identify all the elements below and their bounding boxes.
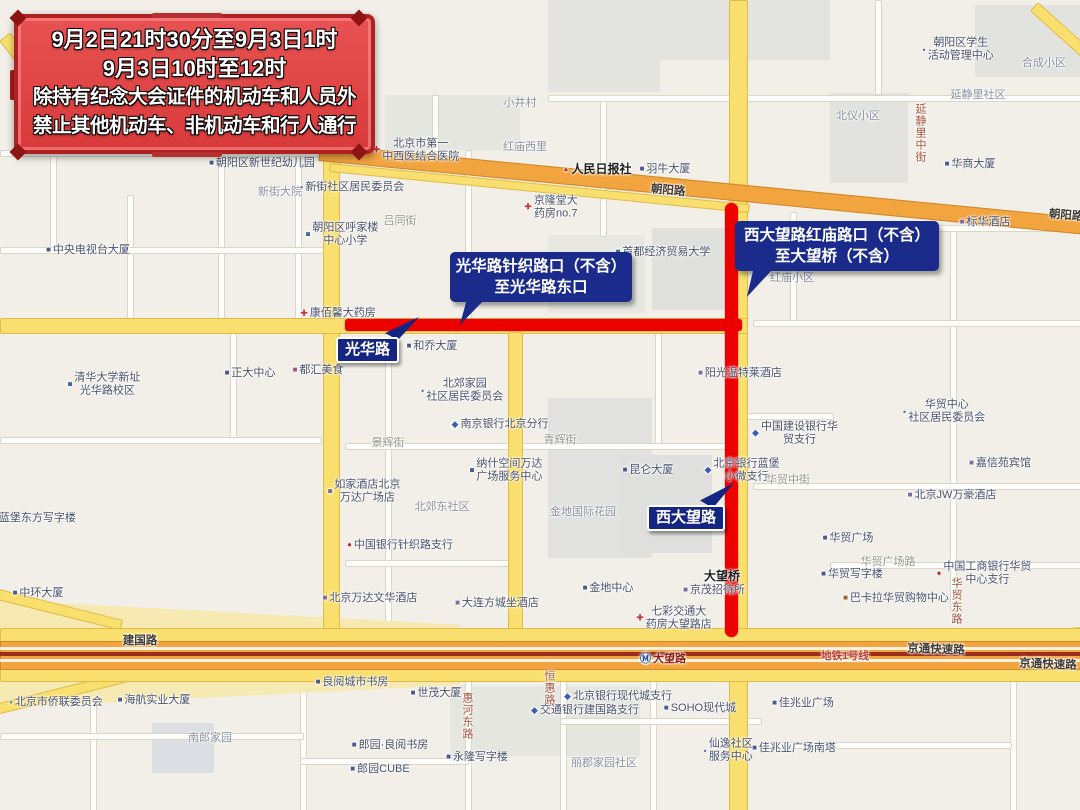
map-label: 标华酒店 — [960, 216, 1011, 229]
hotel-icon — [455, 599, 460, 607]
banner-line: 9月3日10时至12时 — [21, 54, 368, 83]
map-label: 纳什空间万达广场服务中心 — [470, 458, 543, 483]
callout-line: 光华路针织路口（不含） — [452, 256, 630, 277]
building-icon — [823, 534, 828, 542]
map-label: 合成小区 — [1022, 57, 1066, 70]
building-icon — [13, 589, 18, 597]
map-label: 北郊家园社区居民委员会 — [421, 378, 504, 403]
building-icon — [640, 165, 645, 173]
road-segment — [0, 437, 322, 444]
map-label: 中央电视台大厦 — [46, 244, 130, 257]
school-icon — [306, 230, 311, 238]
road-segment — [655, 333, 662, 447]
building-icon — [316, 678, 321, 686]
banner-ornament — [152, 152, 222, 157]
map-label: 北郊东社区 — [415, 501, 470, 514]
building-icon — [118, 696, 123, 704]
map-label: 南京银行北京分行 — [452, 418, 549, 431]
map-label: 如家酒店北京万达广场店 — [328, 479, 401, 504]
map-label: 海航实业大厦 — [118, 694, 191, 707]
road-segment — [295, 150, 302, 330]
city-block — [548, 0, 660, 92]
badge-xidawang-road: 西大望路 — [647, 505, 725, 531]
map-label: 小井村 — [504, 97, 537, 110]
dot-icon — [922, 45, 926, 53]
bank-blue-icon — [752, 429, 759, 438]
building-icon — [664, 704, 669, 712]
building-icon — [225, 369, 230, 377]
map-label: 华贸广场路 — [861, 556, 916, 569]
building-icon — [945, 160, 950, 168]
building-icon — [209, 159, 214, 167]
map-label: 大望路 — [640, 653, 686, 666]
map-label: 永隆写字楼 — [446, 751, 508, 764]
map-label: 延静里中街 — [914, 103, 926, 163]
map-label: 康佰馨大药房 — [300, 307, 376, 320]
map-label: 北仪小区 — [836, 110, 880, 123]
map-label: 惠河东路 — [461, 692, 473, 740]
map-label: 华贸中心社区居民委员会 — [903, 399, 986, 424]
map-label: 中环大厦 — [13, 587, 64, 600]
bank-blue-icon — [531, 706, 538, 715]
bank-red-icon — [347, 541, 352, 549]
building-icon — [772, 699, 777, 707]
map-label: 红庙小区 — [770, 272, 814, 285]
city-block — [830, 93, 908, 183]
callout-line: 至大望桥（不含） — [737, 246, 937, 267]
map-label: 郎园·良阅书房 — [352, 739, 429, 752]
map-label: 青辉街 — [544, 434, 577, 447]
map-label: 京隆堂大药房no.7 — [524, 195, 578, 220]
map-label: 巴卡拉华贸购物中心 — [843, 592, 949, 605]
dot-icon — [421, 386, 425, 394]
map-label: 华贸东路 — [950, 577, 962, 625]
hotel-icon — [328, 487, 333, 495]
map-label: 嘉信苑宾馆 — [969, 457, 1031, 470]
map-label: 京通快速路 — [1019, 658, 1077, 672]
callout-guanghua: 光华路针织路口（不含） 至光华路东口 — [450, 252, 632, 302]
map-label: 华贸中街 — [766, 474, 810, 487]
hotel-icon — [683, 586, 688, 594]
map-label: 世茂大厦 — [411, 687, 462, 700]
road-segment — [753, 320, 1080, 327]
flag-icon — [563, 165, 570, 173]
map-label: 华贸广场 — [823, 532, 874, 545]
bank-blue-icon — [705, 466, 712, 475]
building-icon — [821, 570, 826, 578]
shop-icon — [843, 594, 848, 602]
hotel-icon — [323, 594, 328, 602]
map-label: 中国银行针织路支行 — [347, 539, 453, 552]
school-icon — [68, 380, 73, 388]
map-label: 华贸写字楼 — [821, 568, 883, 581]
building-icon — [446, 753, 451, 761]
banner-line: 除持有纪念大会证件的机动车和人员外 — [21, 83, 368, 112]
map-label: 朝阳区新世纪幼儿园 — [209, 157, 315, 170]
map-label: 七彩交通大药房大望路店 — [636, 606, 712, 631]
map-label: 北京市第一中西医结合医院 — [373, 138, 460, 163]
hotel-icon — [960, 218, 965, 226]
building-icon — [470, 466, 475, 474]
map-label: 建国路 — [123, 635, 158, 648]
map-label: 新街大院 — [258, 186, 302, 199]
map-label: 清华大学新址光华路校区 — [68, 372, 141, 397]
pharmacy-icon — [636, 614, 644, 623]
map-label: 人民日报社 — [563, 163, 632, 176]
hotel-icon — [969, 459, 974, 467]
map-label: 羽牛大厦 — [640, 163, 691, 176]
road-segment — [0, 733, 304, 740]
hotel-icon — [908, 491, 913, 499]
banner-line: 9月2日21时30分至9月3日1时 — [21, 25, 368, 54]
map-label: 北京市侨联委员会 — [9, 696, 103, 709]
map-label: 佳兆业广场南塔 — [752, 742, 836, 755]
map-label: 郎园CUBE — [350, 763, 409, 776]
badge-label: 光华路 — [345, 341, 390, 358]
map-label: 北京银行现代城支行 — [564, 690, 672, 703]
banner-ornament — [152, 13, 222, 18]
callout-line: 至光华路东口 — [452, 277, 630, 298]
building-icon — [411, 689, 416, 697]
map-label: 蓝堡东方写字楼 — [0, 512, 76, 525]
dot-icon — [300, 183, 304, 191]
map-label: 恒惠路 — [543, 670, 555, 706]
bank-blue-icon — [452, 420, 459, 429]
badge-guanghua-road: 光华路 — [336, 337, 399, 363]
dot-icon — [703, 746, 707, 754]
map-label: 红庙西里 — [503, 141, 547, 154]
badge-label: 西大望路 — [656, 509, 716, 526]
bank-red-icon — [937, 569, 942, 577]
map-label: 和乔大厦 — [407, 340, 458, 353]
map-label: 都汇美食 — [293, 364, 344, 377]
road-segment — [127, 195, 134, 327]
map-label: 景辉街 — [372, 437, 405, 450]
map-label: 丽郡家园社区 — [571, 757, 637, 770]
metro-icon — [640, 654, 651, 665]
pharmacy-icon — [524, 203, 532, 212]
map-label: 正大中心 — [225, 367, 276, 380]
bank-blue-icon — [564, 692, 571, 701]
map-label: 交通银行建国路支行 — [531, 704, 639, 717]
map-label: 阳光温特莱酒店 — [698, 367, 782, 380]
map-canvas[interactable]: 朝阳区新世纪幼儿园新街大院新街社区居民委员会中央电视台大厦朝阳区呼家楼中心小学吕… — [0, 0, 1080, 810]
map-label: 仙逸社区服务中心 — [703, 738, 753, 763]
map-label: 佳兆业广场 — [772, 697, 834, 710]
building-icon — [350, 765, 355, 773]
city-block — [652, 228, 732, 310]
food-icon — [293, 366, 298, 374]
dot-icon — [9, 698, 13, 706]
pharmacy-icon — [300, 309, 308, 318]
road-segment — [875, 0, 882, 95]
map-label: 新街社区居民委员会 — [300, 181, 405, 194]
map-label: 南郎家园 — [188, 732, 232, 745]
road-segment — [50, 150, 57, 252]
map-label: 京通快速路 — [907, 643, 965, 657]
road-segment — [218, 150, 225, 330]
map-label: 大望桥 — [704, 570, 740, 583]
lane-separator — [0, 659, 1080, 662]
road-segment — [737, 413, 834, 420]
banner-line: 禁止其他机动车、非机动车和行人通行 — [21, 112, 368, 141]
building-icon — [583, 584, 588, 592]
map-label: 朝阳区呼家楼中心小学 — [306, 222, 379, 247]
map-label: 北京万达文华酒店 — [323, 592, 418, 605]
map-label: 华商大厦 — [945, 158, 996, 171]
map-label: 良阅城市书房 — [316, 676, 389, 689]
map-label: SOHO现代城 — [664, 702, 736, 715]
traffic-restriction-banner: 9月2日21时30分至9月3日1时 9月3日10时至12时 除持有纪念大会证件的… — [14, 14, 375, 154]
building-icon — [407, 342, 412, 350]
map-label: 大连方城坐酒店 — [455, 597, 539, 610]
map-label: 朝阳区学生活动管理中心 — [922, 37, 994, 62]
hotel-icon — [698, 369, 703, 377]
map-label: 地铁1号线 — [821, 650, 869, 663]
city-block — [152, 723, 214, 773]
map-label: 京茂招待所 — [683, 584, 745, 597]
map-label: 吕同街 — [384, 215, 417, 228]
map-label: 北京JW万豪酒店 — [908, 489, 997, 502]
building-icon — [352, 741, 357, 749]
map-label: 金地中心 — [583, 582, 634, 595]
building-icon — [46, 246, 51, 254]
road-segment — [230, 333, 237, 439]
map-label: 延静里社区 — [951, 89, 1006, 102]
dot-icon — [903, 407, 907, 415]
building-icon — [623, 466, 628, 474]
map-label: 中国建设银行华贸支行 — [752, 421, 838, 446]
road-segment — [345, 560, 515, 567]
callout-xidawang: 西大望路红庙路口（不含） 至大望桥（不含） — [735, 221, 939, 271]
callout-line: 西大望路红庙路口（不含） — [737, 225, 937, 246]
map-label: 金地国际花园 — [550, 506, 616, 519]
map-label: 昆仑大厦 — [623, 464, 674, 477]
